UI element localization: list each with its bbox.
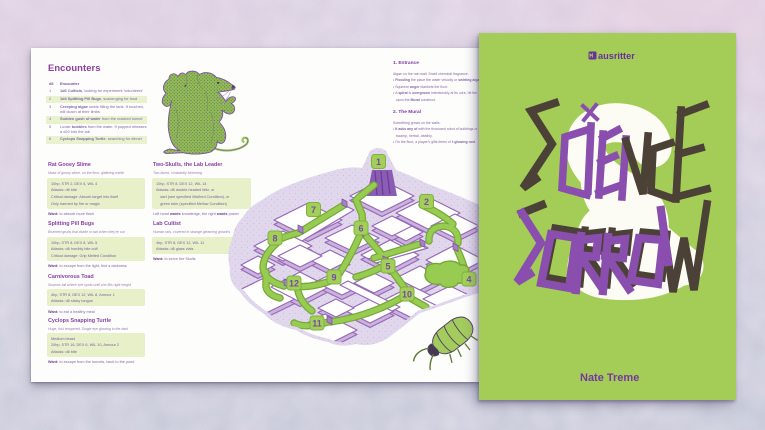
svg-text:1: 1 — [376, 157, 381, 167]
svg-text:10: 10 — [402, 289, 412, 299]
svg-text:11: 11 — [312, 318, 322, 328]
svg-text:4: 4 — [466, 274, 471, 284]
svg-text:12: 12 — [289, 278, 299, 288]
svg-text:9: 9 — [331, 272, 336, 282]
svg-text:7: 7 — [311, 205, 316, 215]
svg-text:2: 2 — [424, 197, 429, 207]
svg-text:6: 6 — [358, 223, 363, 233]
svg-text:5: 5 — [385, 261, 390, 271]
svg-text:8: 8 — [272, 233, 277, 243]
svg-text:Nate Treme: Nate Treme — [580, 372, 639, 384]
